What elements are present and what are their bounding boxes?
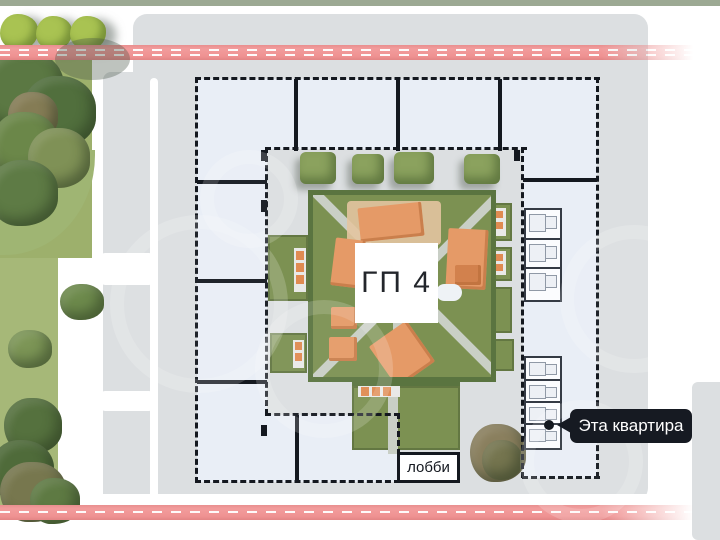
courtyard-bush: [464, 154, 500, 184]
door-mark: [261, 425, 267, 436]
interior-wall: [396, 79, 400, 151]
courtyard-bush: [300, 152, 336, 184]
tree: [482, 440, 522, 480]
tree: [0, 160, 58, 226]
interior-wall: [294, 79, 298, 151]
door-mark: [514, 150, 520, 161]
tree: [60, 284, 104, 320]
site-path-gap-2: [100, 391, 154, 411]
tree: [8, 330, 52, 368]
this-apartment-tooltip-text: Эта квартира: [579, 416, 684, 436]
lobby-label-text: лобби: [407, 459, 450, 476]
lobby-label: лобби: [397, 452, 460, 483]
this-apartment-tooltip[interactable]: Эта квартира: [570, 409, 692, 443]
site-plan-screenshot: ГП 4 лобби Эта квартира: [0, 0, 720, 540]
apartment-unit-cluster: [524, 208, 562, 302]
building-plot-label-text: ГП 4: [361, 266, 432, 300]
courtyard-bush: [394, 152, 434, 184]
playground-equipment: [357, 202, 424, 243]
plan-edge-lobby-side: [397, 413, 400, 455]
watermark-circle: [200, 150, 298, 248]
courtyard-bush: [352, 154, 384, 184]
courtyard-path-stub: [436, 284, 462, 301]
top-tree-strip: [0, 0, 720, 6]
tree-shadow: [55, 38, 130, 80]
interior-wall: [498, 79, 502, 151]
playground-equipment: [455, 265, 481, 285]
apartment-marker-dot[interactable]: [544, 420, 554, 430]
building-plot-label: ГП 4: [355, 243, 438, 323]
watermark-circle: [560, 225, 708, 373]
interior-wall: [523, 178, 597, 182]
tooltip-arrow-icon: [557, 417, 571, 433]
